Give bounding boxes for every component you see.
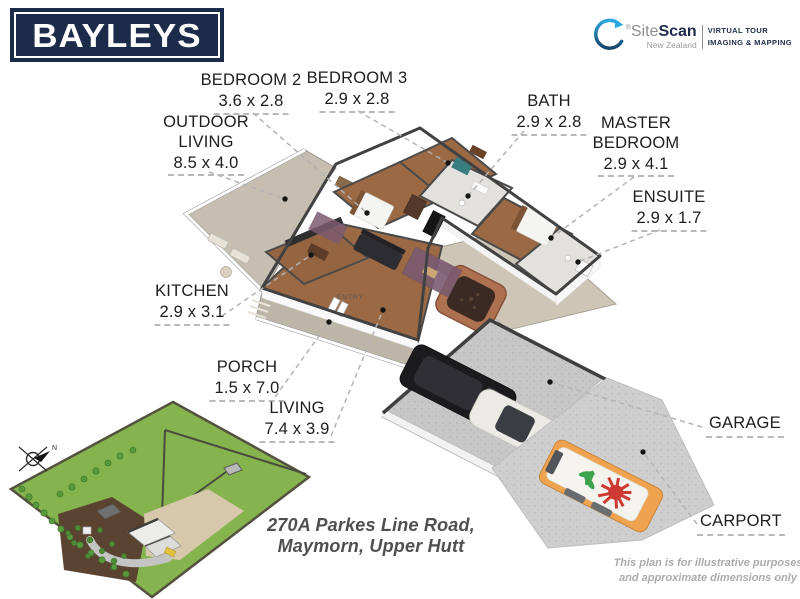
label-ensuite: ENSUITE 2.9 x 1.7 bbox=[631, 188, 706, 232]
disclaimer-text: This plan is for illustrative purposes a… bbox=[614, 556, 800, 586]
bayleys-logo-text: BAYLEYS bbox=[32, 19, 201, 52]
sitescan-tagline-1: VIRTUAL TOUR bbox=[708, 25, 792, 37]
sitescan-scan-text: Scan bbox=[658, 23, 696, 40]
label-garage: GARAGE bbox=[706, 414, 784, 438]
sitescan-tagline-2: IMAGING & MAPPING bbox=[708, 37, 792, 49]
property-address: 270A Parkes Line Road, Maymorn, Upper Hu… bbox=[267, 515, 475, 557]
label-porch: PORCH 1.5 x 7.0 bbox=[209, 358, 284, 402]
label-bedroom3: BEDROOM 3 2.9 x 2.8 bbox=[307, 69, 408, 113]
label-living: LIVING 7.4 x 3.9 bbox=[259, 399, 334, 443]
logo-divider bbox=[702, 25, 703, 49]
sitescan-region-text: New Zealand bbox=[626, 40, 697, 50]
label-bedroom2: BEDROOM 2 3.6 x 2.8 bbox=[201, 71, 302, 115]
sitescan-site-text: Site bbox=[631, 23, 659, 40]
bayleys-logo: BAYLEYS bbox=[10, 8, 224, 62]
label-kitchen: KITCHEN 2.9 x 3.1 bbox=[154, 282, 229, 326]
label-outdoor-living: OUTDOOR LIVING 8.5 x 4.0 bbox=[158, 113, 254, 176]
label-master-bedroom: MASTER BEDROOM 2.9 x 4.1 bbox=[584, 114, 688, 177]
compass-north-label: N bbox=[52, 445, 57, 452]
floor-plan-page: N bbox=[0, 0, 800, 599]
label-bath: BATH 2.9 x 2.8 bbox=[511, 92, 586, 136]
entry-label: ENTRY bbox=[337, 294, 364, 301]
sitescan-logo: ®SiteScan New Zealand VIRTUAL TOUR IMAGI… bbox=[586, 16, 792, 58]
label-carport: CARPORT bbox=[697, 512, 785, 536]
